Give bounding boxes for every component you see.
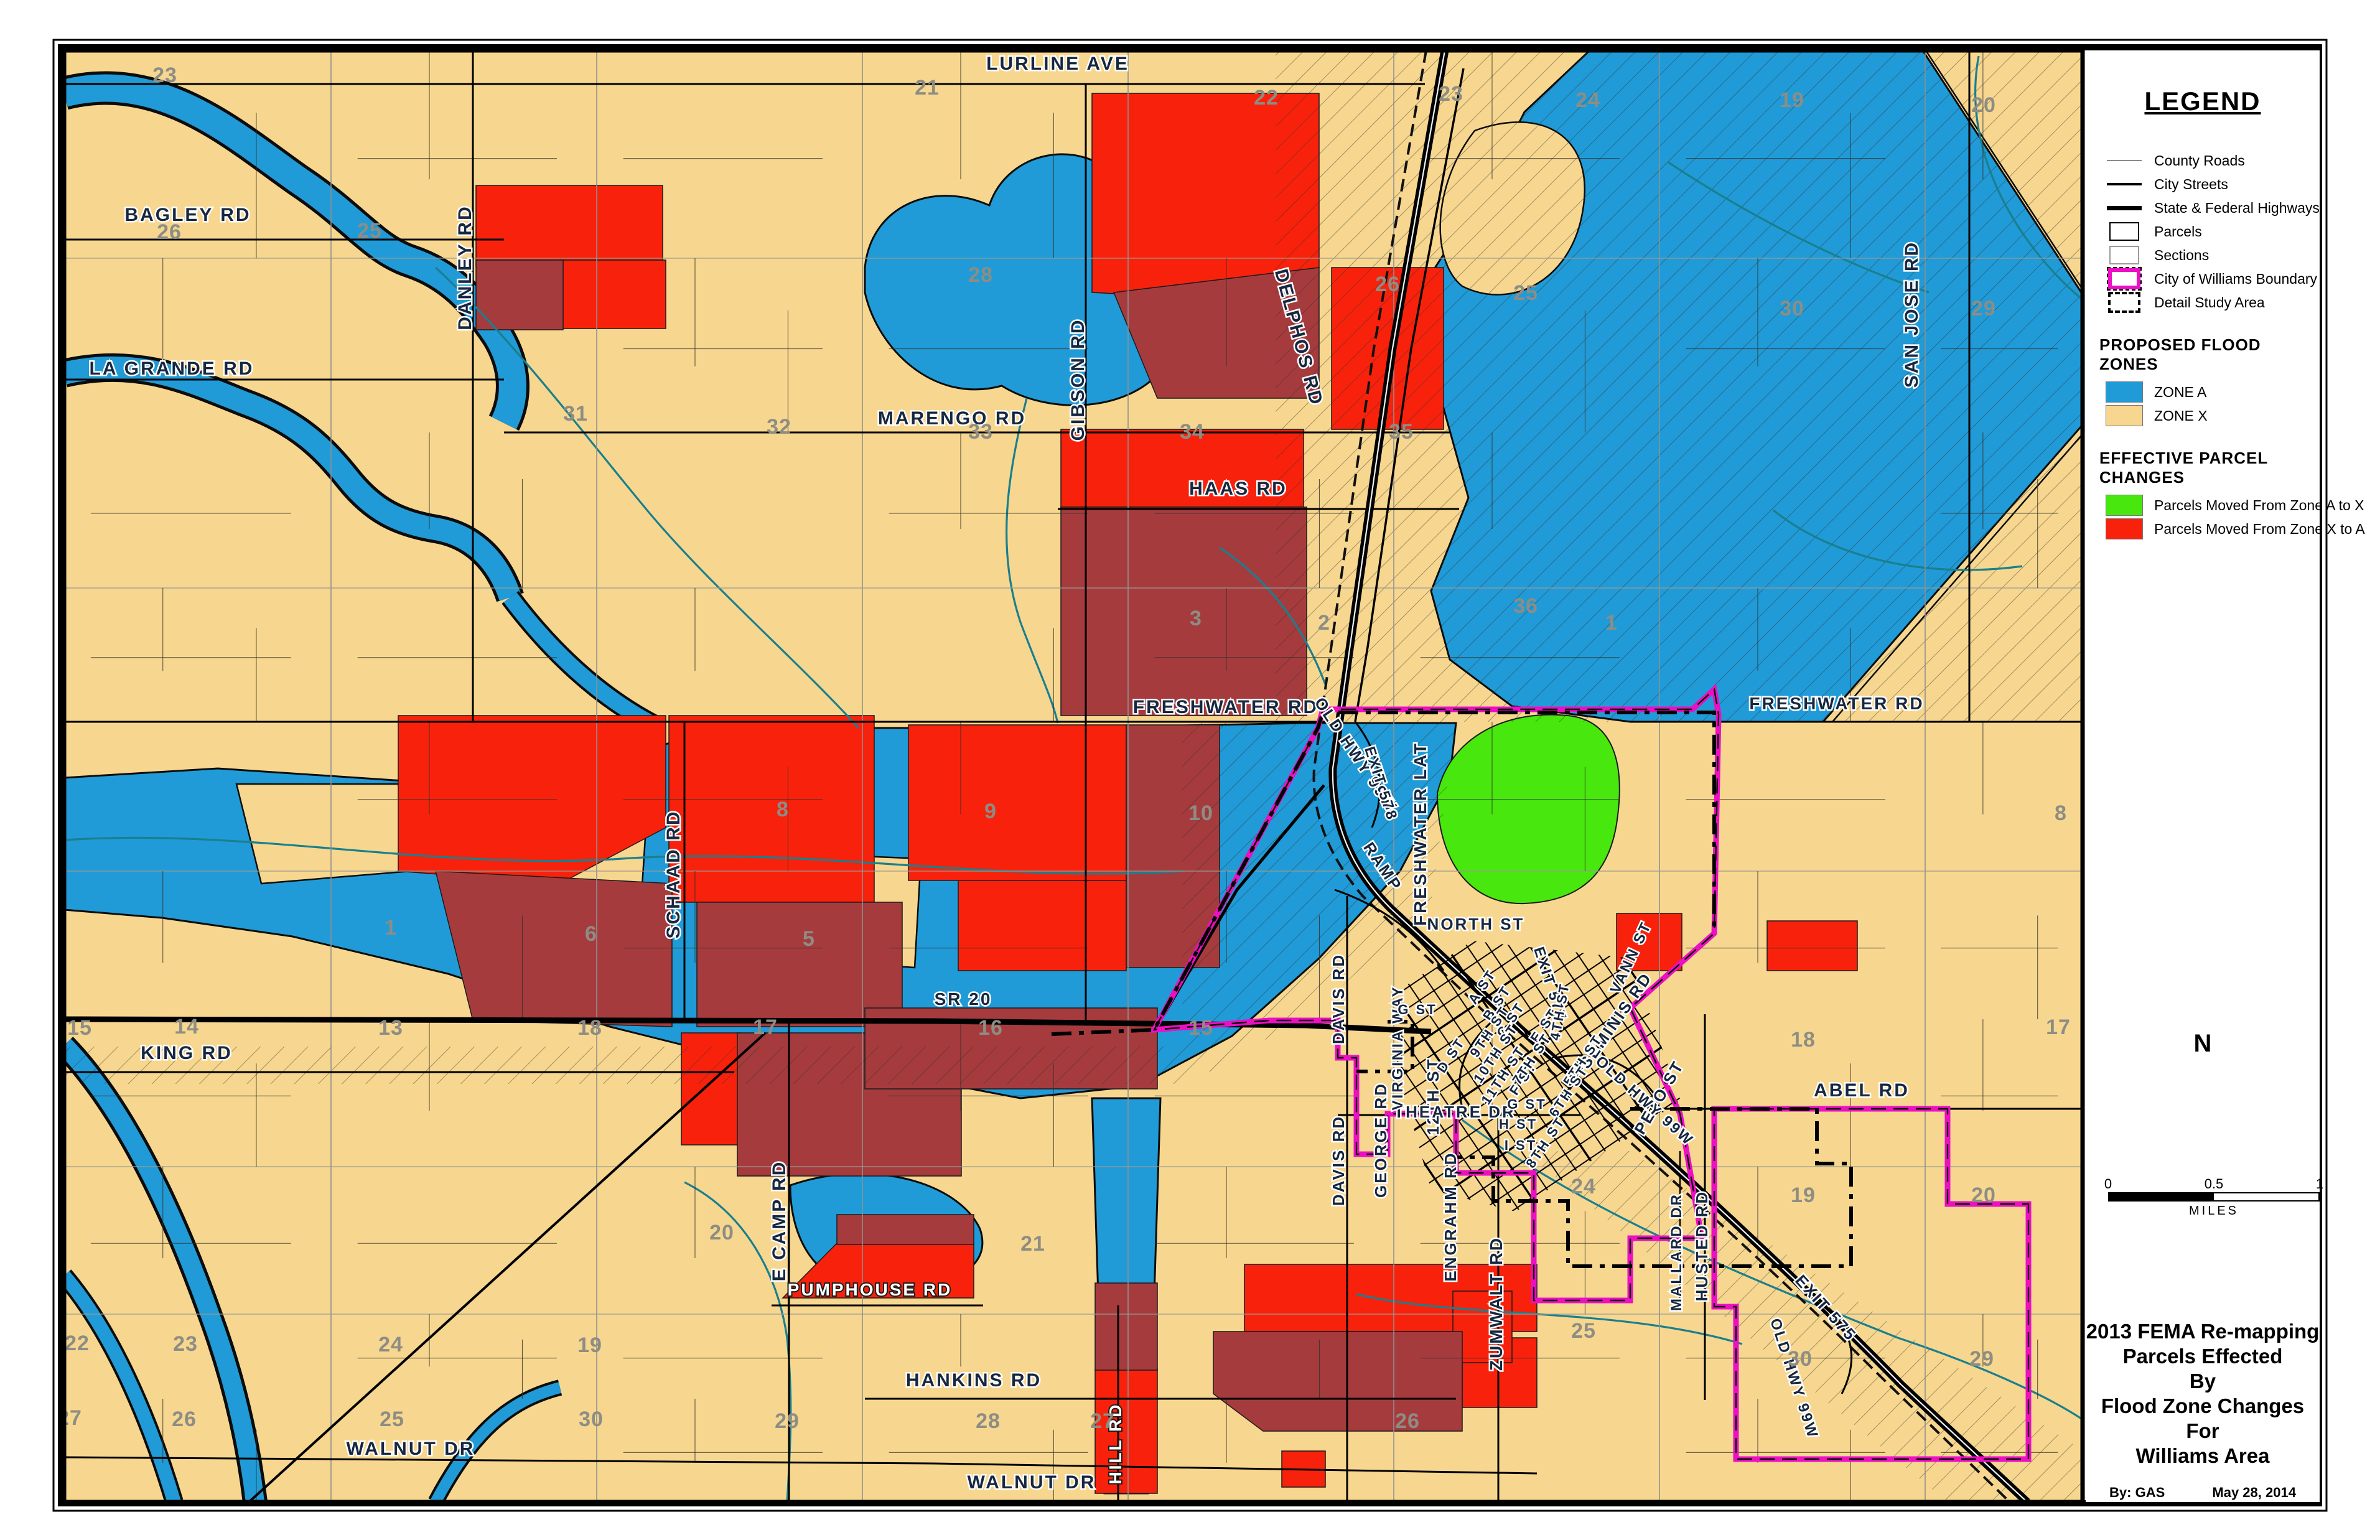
road-label: DANLEY RD [455,205,475,330]
road-label: HUSTED RD [1692,1190,1711,1302]
road-label: KING RD [141,1043,233,1063]
compass-label: N [2086,1030,2320,1058]
map-title: 2013 FEMA Re-mappingParcels EffectedByFl… [2086,1319,2320,1468]
title-line: Parcels Effected [2086,1344,2320,1369]
section-number: 26 [1375,273,1400,296]
road-label: H ST [1499,1116,1538,1132]
legend-item-study-area: Detail Study Area [2086,291,2320,314]
map-sheet: LURLINE AVEBAGLEY RDDANLEY RDLA GRANDE R… [0,0,2380,1540]
road-label: BAGLEY RD [124,205,251,225]
legend-item-zone-a-label: ZONE A [2154,384,2206,401]
section-number: 22 [1254,86,1279,110]
section-number: 19 [1791,1183,1816,1207]
legend-flood-header: PROPOSED FLOOD ZONES [2086,335,2320,374]
scale-tick-1: 1 [2316,1176,2323,1192]
legend-panel: LEGEND County RoadsCity StreetsState & F… [2086,50,2320,1502]
section-number: 1 [1605,611,1618,635]
section-number: 26 [1395,1409,1420,1433]
legend-changes-header: EFFECTIVE PARCEL CHANGES [2086,449,2320,487]
section-number: 25 [1571,1319,1596,1343]
road-label: SCHAAD RD [663,810,684,939]
legend-item-zone-x-label: ZONE X [2154,408,2208,424]
section-number: 25 [357,219,382,243]
section-number: 24 [1575,88,1600,112]
section-number: 28 [968,263,993,287]
legend-item-city-street-label: City Streets [2154,176,2228,193]
compass: N [2086,1030,2320,1058]
section-number: 26 [172,1407,197,1431]
legend-item-county-road-swatch [2104,160,2144,161]
legend-item-city-boundary-swatch [2104,268,2144,289]
road-label: FRESHWATER LAT [1411,742,1430,926]
section-number: 19 [1780,88,1804,112]
section-number: 14 [174,1015,199,1038]
section-number: 32 [767,415,791,439]
section-number: 15 [1188,1016,1213,1040]
road-label: FRESHWATER RD [1133,697,1318,717]
section-number: 34 [1180,420,1205,444]
legend-flood-items: ZONE AZONE X [2086,380,2320,427]
section-number: 36 [1513,594,1538,618]
legend-item-county-road: County Roads [2086,149,2320,172]
legend-item-change-0: Parcels Moved From Zone A to X [2086,493,2320,517]
legend-item-parcels-label: Parcels [2154,223,2202,240]
title-line: Flood Zone Changes [2086,1394,2320,1419]
title-line: Williams Area [2086,1444,2320,1468]
section-number: 22 [65,1332,90,1355]
title-line: 2013 FEMA Re-mapping [2086,1319,2320,1344]
road-label: GEORGE RD [1371,1082,1390,1198]
title-line: By [2086,1369,2320,1394]
section-number: 30 [1780,297,1804,320]
author: By: GAS [2109,1485,2165,1501]
legend-line-items: County RoadsCity StreetsState & Federal … [2086,149,2320,314]
section-number: 17 [753,1015,778,1039]
section-number: 2 [1318,611,1330,635]
section-number: 21 [1020,1232,1045,1256]
section-number: 5 [803,927,815,951]
road-label: G ST [1398,1002,1437,1017]
road-label: SAN JOSE RD [1902,241,1922,388]
legend-item-city-boundary: City of Williams Boundary [2086,267,2320,291]
legend-item-highway-swatch [2104,206,2144,210]
scale-bar-graphic [2108,1192,2320,1202]
legend-item-sections-swatch [2104,246,2144,264]
section-number: 27 [1090,1409,1115,1433]
section-number: 8 [777,798,789,821]
legend-item-zone-a: ZONE A [2086,380,2320,404]
legend-item-city-boundary-label: City of Williams Boundary [2154,271,2317,287]
road-label: PUMPHOUSE RD [788,1280,953,1299]
section-number: 1 [385,916,397,940]
section-number: 3 [1190,607,1202,630]
section-number: 18 [1791,1028,1816,1052]
section-number: 8 [2055,801,2067,825]
road-label: ENGRAHM RD [1441,1151,1460,1281]
section-number: 29 [1969,1347,1994,1371]
section-number: 23 [152,63,177,87]
section-number: 25 [380,1407,404,1431]
section-number: 6 [585,922,597,946]
section-number: 16 [978,1016,1003,1040]
section-number: 29 [1971,297,1996,320]
road-label: ZUMWALT RD [1486,1236,1506,1371]
road-label: LA GRANDE RD [90,358,254,379]
section-number: 29 [775,1409,800,1433]
legend-item-zone-x: ZONE X [2086,404,2320,427]
section-number: 20 [1971,1183,1996,1207]
legend-item-change-0-swatch [2104,495,2144,516]
road-label: G ST [1507,1096,1546,1112]
road-label: NORTH ST [1427,915,1525,933]
road-label: DAVIS RD [1329,953,1348,1044]
section-number: 30 [579,1407,604,1431]
section-number: 17 [2046,1015,2071,1039]
legend-item-sections: Sections [2086,243,2320,267]
road-label: MARENGO RD [878,408,1026,429]
section-number: 31 [563,402,588,426]
road-label: WALNUT DR [968,1472,1096,1493]
legend-item-highway: State & Federal Highways [2086,196,2320,220]
legend-item-study-area-label: Detail Study Area [2154,294,2265,311]
section-number: 23 [173,1332,198,1356]
legend-item-city-street-swatch [2104,183,2144,185]
scale-unit: MILES [2108,1204,2320,1218]
legend-item-county-road-label: County Roads [2154,152,2245,169]
road-label: LURLINE AVE [986,54,1129,74]
section-number: 28 [976,1409,1001,1433]
scale-tick-0: 0 [2104,1176,2112,1192]
road-label: WALNUT DR [347,1439,475,1459]
section-number: 20 [1971,93,1996,117]
section-number: 21 [915,76,940,100]
section-number: 30 [1788,1347,1813,1371]
road-label: THEATRE DR [1394,1103,1516,1121]
legend-item-zone-a-swatch [2104,381,2144,403]
section-number: 33 [968,420,993,444]
road-label: DAVIS RD [1329,1115,1348,1206]
road-label: HANKINS RD [906,1370,1042,1391]
section-number: 20 [709,1221,734,1244]
road-label: ABEL RD [1814,1080,1910,1101]
section-number: 23 [1439,82,1463,106]
section-number: 18 [577,1016,602,1040]
section-number: 9 [984,800,997,823]
section-number: 15 [67,1016,92,1040]
section-number: 25 [1513,281,1538,305]
legend-item-sections-label: Sections [2154,247,2209,264]
section-number: 24 [378,1333,403,1356]
section-number: 19 [577,1333,602,1357]
scale-bar: 0 0.5 1 MILES [2108,1176,2320,1218]
legend-change-items: Parcels Moved From Zone A to XParcels Mo… [2086,493,2320,541]
road-label: SR 20 [935,989,992,1009]
legend-item-zone-x-swatch [2104,405,2144,426]
legend-item-parcels-swatch [2104,222,2144,241]
section-number: 10 [1188,801,1213,825]
legend-item-change-1: Parcels Moved From Zone X to A [2086,517,2320,541]
scale-tick-05: 0.5 [2205,1176,2224,1192]
road-label: E CAMP RD [769,1160,790,1282]
legend-item-change-1-label: Parcels Moved From Zone X to A [2154,521,2365,538]
section-number: 26 [157,220,182,244]
legend-title: LEGEND [2086,86,2320,116]
legend-item-change-1-swatch [2104,518,2144,539]
legend-item-highway-label: State & Federal Highways [2154,200,2320,217]
legend-item-city-street: City Streets [2086,172,2320,196]
title-block: 2013 FEMA Re-mappingParcels EffectedByFl… [2086,1319,2320,1501]
section-number: 35 [1389,420,1414,444]
date: May 28, 2014 [2212,1485,2296,1501]
section-number: 13 [378,1016,403,1040]
road-label: GIBSON RD [1068,318,1088,441]
road-label: FRESHWATER RD [1749,694,1924,713]
title-line: For [2086,1419,2320,1444]
legend-item-study-area-swatch [2104,292,2144,313]
road-label: MALLARD DR [1668,1193,1685,1311]
legend-item-change-0-label: Parcels Moved From Zone A to X [2154,497,2364,514]
legend-item-parcels: Parcels [2086,220,2320,243]
map-canvas: LURLINE AVEBAGLEY RDDANLEY RDLA GRANDE R… [0,0,2380,1540]
section-number: 24 [1571,1175,1596,1198]
road-label: HAAS RD [1189,478,1287,499]
